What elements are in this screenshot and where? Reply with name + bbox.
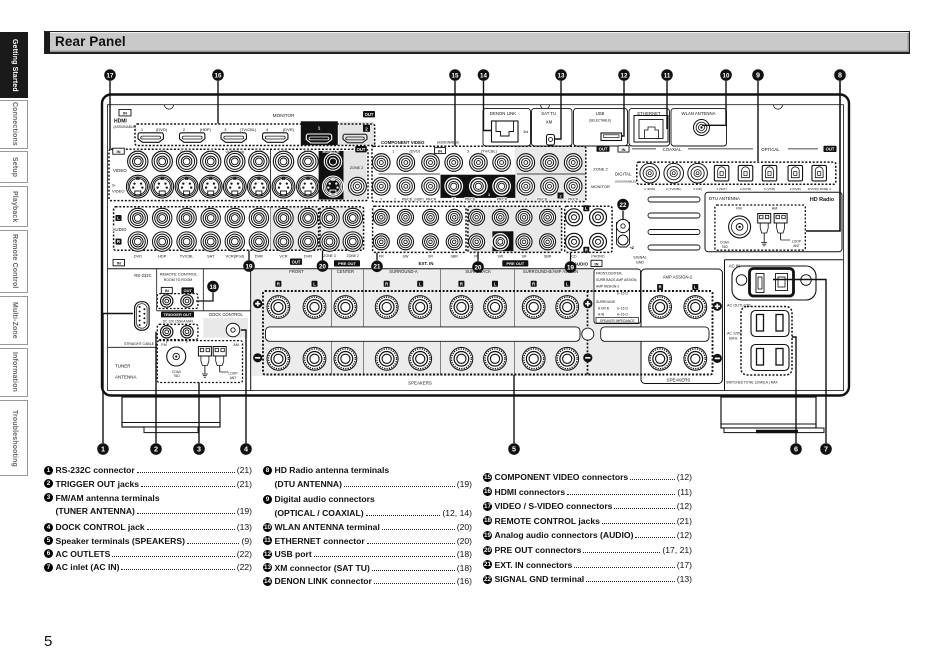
svg-text:1: 1 <box>488 193 490 197</box>
svg-text:3rd: 3rd <box>523 130 528 134</box>
svg-text:SW: SW <box>403 254 409 258</box>
svg-text:IN: IN <box>595 261 599 266</box>
svg-text:GND: GND <box>636 260 645 264</box>
svg-text:VIDEO: VIDEO <box>113 168 127 173</box>
svg-text:L: L <box>566 281 569 286</box>
svg-text:PRE OUT: PRE OUT <box>338 261 356 266</box>
svg-text:R: R <box>385 281 388 286</box>
svg-text:17: 17 <box>107 72 114 79</box>
svg-text:L: L <box>313 281 316 286</box>
svg-text:(SELECTABLE): (SELECTABLE) <box>589 118 611 122</box>
svg-text:19: 19 <box>567 264 574 271</box>
svg-text:R: R <box>585 247 588 252</box>
svg-text:A+B: A+B <box>598 312 605 316</box>
svg-text:2: 2 <box>365 127 368 132</box>
svg-text:ANTENNA: ANTENNA <box>115 375 137 380</box>
svg-text:HD Radio: HD Radio <box>810 197 835 203</box>
svg-text:DOCK CONTROL: DOCK CONTROL <box>209 312 243 317</box>
svg-text:REMOTE CONTROL: REMOTE CONTROL <box>160 271 199 276</box>
svg-text:R: R <box>532 281 535 286</box>
svg-text:L: L <box>585 206 588 211</box>
svg-text:FM: FM <box>161 343 166 347</box>
svg-text:WLAN ANTENNA: WLAN ANTENNA <box>682 111 716 116</box>
svg-text:1 (SAT): 1 (SAT) <box>716 187 726 191</box>
svg-text:(TV/CBL): (TV/CBL) <box>481 150 498 154</box>
svg-text:20: 20 <box>475 264 482 271</box>
svg-text:OUT: OUT <box>183 288 192 293</box>
svg-text:2 (TV/CBL): 2 (TV/CBL) <box>666 187 681 191</box>
svg-text:MONITOR: MONITOR <box>273 113 295 118</box>
svg-text:SPEAKER IMPEDANCE: SPEAKER IMPEDANCE <box>600 319 635 323</box>
svg-text:AM: AM <box>772 207 778 211</box>
svg-text:DIGITAL: DIGITAL <box>615 172 632 177</box>
svg-text:2: 2 <box>154 444 158 453</box>
svg-text:DVD: DVD <box>134 253 142 258</box>
svg-text:ZONE 2: ZONE 2 <box>350 166 363 170</box>
svg-text:DC 12V 150mA MAX: DC 12V 150mA MAX <box>163 319 195 323</box>
svg-text:3: 3 <box>467 150 469 154</box>
svg-text:(ASSIGNABLE): (ASSIGNABLE) <box>615 180 636 184</box>
svg-text:R: R <box>659 285 662 290</box>
svg-text:FRONT: FRONT <box>289 269 304 274</box>
svg-text:COAX: COAX <box>172 370 182 374</box>
svg-text:ZONE 3: ZONE 3 <box>323 254 335 258</box>
svg-text:MONITOR: MONITOR <box>591 184 610 189</box>
svg-text:11: 11 <box>664 72 671 79</box>
svg-text:3: 3 <box>197 444 201 453</box>
svg-text:10: 10 <box>723 72 730 79</box>
svg-text:OUT: OUT <box>292 259 301 264</box>
svg-text:AM: AM <box>233 343 239 347</box>
svg-text:OUT: OUT <box>599 146 608 151</box>
svg-text:2 (DVR): 2 (DVR) <box>740 187 751 191</box>
svg-text:COAX: COAX <box>720 241 730 245</box>
svg-text:6: 6 <box>794 444 798 453</box>
svg-text:(DVD): (DVD) <box>409 150 420 154</box>
svg-text:3(VCR)/ ZONE 4: 3(VCR)/ ZONE 4 <box>808 187 831 191</box>
svg-text:S-: S- <box>112 183 117 188</box>
svg-text:FM: FM <box>736 207 741 211</box>
svg-text:(ASSIGNABLE): (ASSIGNABLE) <box>114 125 136 129</box>
svg-text:IN: IN <box>438 148 442 153</box>
svg-text:21: 21 <box>374 264 381 271</box>
svg-text:7: 7 <box>824 444 828 453</box>
svg-text:R: R <box>277 281 280 286</box>
svg-text:SAT TU: SAT TU <box>541 111 556 116</box>
svg-text:ANT: ANT <box>793 244 800 248</box>
svg-text:DENON LINK: DENON LINK <box>490 111 516 116</box>
svg-text:(DVD): (DVD) <box>156 127 168 132</box>
svg-text:75Ω: 75Ω <box>721 245 728 249</box>
svg-text:16: 16 <box>215 72 222 79</box>
svg-text:SIGNAL: SIGNAL <box>633 255 647 259</box>
svg-text:OPTICAL: OPTICAL <box>761 147 780 152</box>
svg-text:PB/CB: PB/CB <box>402 197 413 201</box>
svg-text:18: 18 <box>210 284 217 291</box>
svg-text:15: 15 <box>452 72 459 79</box>
svg-text:VIDEO: VIDEO <box>112 189 124 194</box>
svg-text:AC 120V: AC 120V <box>727 332 742 336</box>
svg-text:FR: FR <box>379 254 384 258</box>
svg-text:4: 4 <box>244 444 248 453</box>
svg-text:1: 1 <box>392 150 394 154</box>
svg-text:19: 19 <box>246 263 253 270</box>
svg-text:9: 9 <box>756 70 760 79</box>
svg-text:2 (DVR): 2 (DVR) <box>790 187 801 191</box>
svg-text:DTU ANTENNA: DTU ANTENNA <box>709 196 740 201</box>
svg-text:3 (CD): 3 (CD) <box>693 187 702 191</box>
svg-text:8: 8 <box>838 70 842 79</box>
svg-text:CD: CD <box>571 254 577 258</box>
svg-text:OUT: OUT <box>826 147 835 152</box>
svg-text:STRAIGHT CABLE: STRAIGHT CABLE <box>124 342 155 346</box>
svg-text:60Hz: 60Hz <box>729 337 738 341</box>
svg-text:ANT: ANT <box>230 376 237 380</box>
svg-text:A OR B: A OR B <box>598 306 610 310</box>
svg-text:SURROUND: SURROUND <box>596 300 616 304</box>
svg-text:1: 1 <box>101 444 105 453</box>
svg-text:(ASSIGNABLE): (ASSIGNABLE) <box>437 141 459 145</box>
svg-text:75Ω: 75Ω <box>173 374 180 378</box>
svg-text:SURROUND-A: SURROUND-A <box>389 269 418 274</box>
svg-text:8~16 Ω: 8~16 Ω <box>617 312 628 316</box>
svg-text:PB/CB: PB/CB <box>465 197 476 201</box>
svg-text:SAT: SAT <box>207 253 215 258</box>
svg-text:PB/CB: PB/CB <box>537 197 548 201</box>
svg-text:(HDP): (HDP) <box>200 127 212 132</box>
svg-text:EXT. IN: EXT. IN <box>419 261 434 266</box>
svg-text:SWITCHED TOTAL 120W(1A.) MAX: SWITCHED TOTAL 120W(1A.) MAX <box>726 380 778 384</box>
svg-text:AMP ASSIGN-2: AMP ASSIGN-2 <box>663 275 693 280</box>
svg-text:IN: IN <box>117 261 121 266</box>
svg-text:22: 22 <box>620 202 627 209</box>
svg-text:AMP ASSIGN-2: AMP ASSIGN-2 <box>596 285 619 289</box>
svg-text:OUT: OUT <box>357 147 366 152</box>
svg-text:1 (DVD): 1 (DVD) <box>644 187 655 191</box>
svg-text:VCR: VCR <box>279 253 287 258</box>
svg-text:TV/CBL: TV/CBL <box>180 253 194 258</box>
svg-text:(DVR): (DVR) <box>283 127 295 132</box>
svg-text:6~16 Ω: 6~16 Ω <box>617 306 628 310</box>
svg-text:2: 2 <box>559 194 561 198</box>
svg-text:L: L <box>694 285 697 290</box>
svg-text:SR: SR <box>428 254 433 258</box>
svg-text:IN: IN <box>117 149 121 154</box>
svg-text:SBR: SBR <box>544 254 552 258</box>
svg-text:DVR: DVR <box>304 253 312 258</box>
svg-text:R: R <box>460 281 463 286</box>
svg-text:ZONE 2: ZONE 2 <box>347 254 359 258</box>
svg-text:IN: IN <box>622 147 626 152</box>
svg-text:DVR: DVR <box>255 253 263 258</box>
svg-text:SPEAKERS: SPEAKERS <box>408 381 432 386</box>
svg-text:RS-232C: RS-232C <box>134 273 151 278</box>
svg-text:TRIGGER OUT: TRIGGER OUT <box>164 312 192 317</box>
svg-text:SBR: SBR <box>451 254 459 258</box>
svg-text:14: 14 <box>480 72 487 79</box>
svg-text:TUNER: TUNER <box>115 364 131 369</box>
svg-text:CENTER: CENTER <box>337 269 354 274</box>
svg-text:FRONT,CENTER,: FRONT,CENTER, <box>596 272 622 276</box>
svg-text:SPEAKERS: SPEAKERS <box>667 378 691 383</box>
svg-text:HDP: HDP <box>158 253 167 258</box>
svg-text:OUT: OUT <box>365 112 374 117</box>
svg-text:PRE OUT: PRE OUT <box>506 261 524 266</box>
svg-text:(HDP): (HDP) <box>414 197 423 201</box>
svg-text:L: L <box>117 216 120 221</box>
svg-text:3 (VCR): 3 (VCR) <box>764 187 775 191</box>
svg-text:AC IN: AC IN <box>729 264 741 269</box>
svg-text:13: 13 <box>558 72 565 79</box>
svg-text:12: 12 <box>621 72 628 79</box>
svg-text:PR/CR: PR/CR <box>568 197 579 201</box>
svg-text:COAXIAL: COAXIAL <box>663 147 682 152</box>
svg-text:XM: XM <box>546 119 553 124</box>
svg-text:AUDIO: AUDIO <box>113 227 127 232</box>
svg-text:L: L <box>419 281 422 286</box>
svg-text:IN: IN <box>123 111 127 116</box>
svg-text:USB: USB <box>596 111 605 116</box>
svg-text:6~16 Ω: 6~16 Ω <box>617 291 628 295</box>
svg-text:2: 2 <box>394 197 396 201</box>
svg-text:ZONE 2: ZONE 2 <box>593 167 608 172</box>
svg-text:COMPONENT VIDEO: COMPONENT VIDEO <box>381 140 425 145</box>
svg-text:PR/CR: PR/CR <box>497 197 508 201</box>
svg-text:IN: IN <box>165 288 169 293</box>
svg-text:HDMI: HDMI <box>114 118 127 124</box>
svg-text:L: L <box>494 281 497 286</box>
svg-text:LOOP: LOOP <box>792 240 802 244</box>
svg-text:1: 1 <box>318 126 321 131</box>
svg-text:5: 5 <box>512 444 516 453</box>
svg-text:SURR.BACK,AMP ASSIGN,: SURR.BACK,AMP ASSIGN, <box>596 278 637 282</box>
svg-text:VCR(iPod): VCR(iPod) <box>226 253 245 258</box>
svg-text:PHONO: PHONO <box>591 254 604 258</box>
svg-text:LOOP: LOOP <box>228 372 238 376</box>
svg-text:PR/CR: PR/CR <box>426 197 437 201</box>
svg-text:ROOM TO ROOM: ROOM TO ROOM <box>164 278 193 282</box>
svg-text:(TV/CBL): (TV/CBL) <box>240 127 257 132</box>
svg-text:SR: SR <box>522 254 527 258</box>
svg-text:SW: SW <box>497 254 503 258</box>
svg-text:20: 20 <box>319 263 326 270</box>
